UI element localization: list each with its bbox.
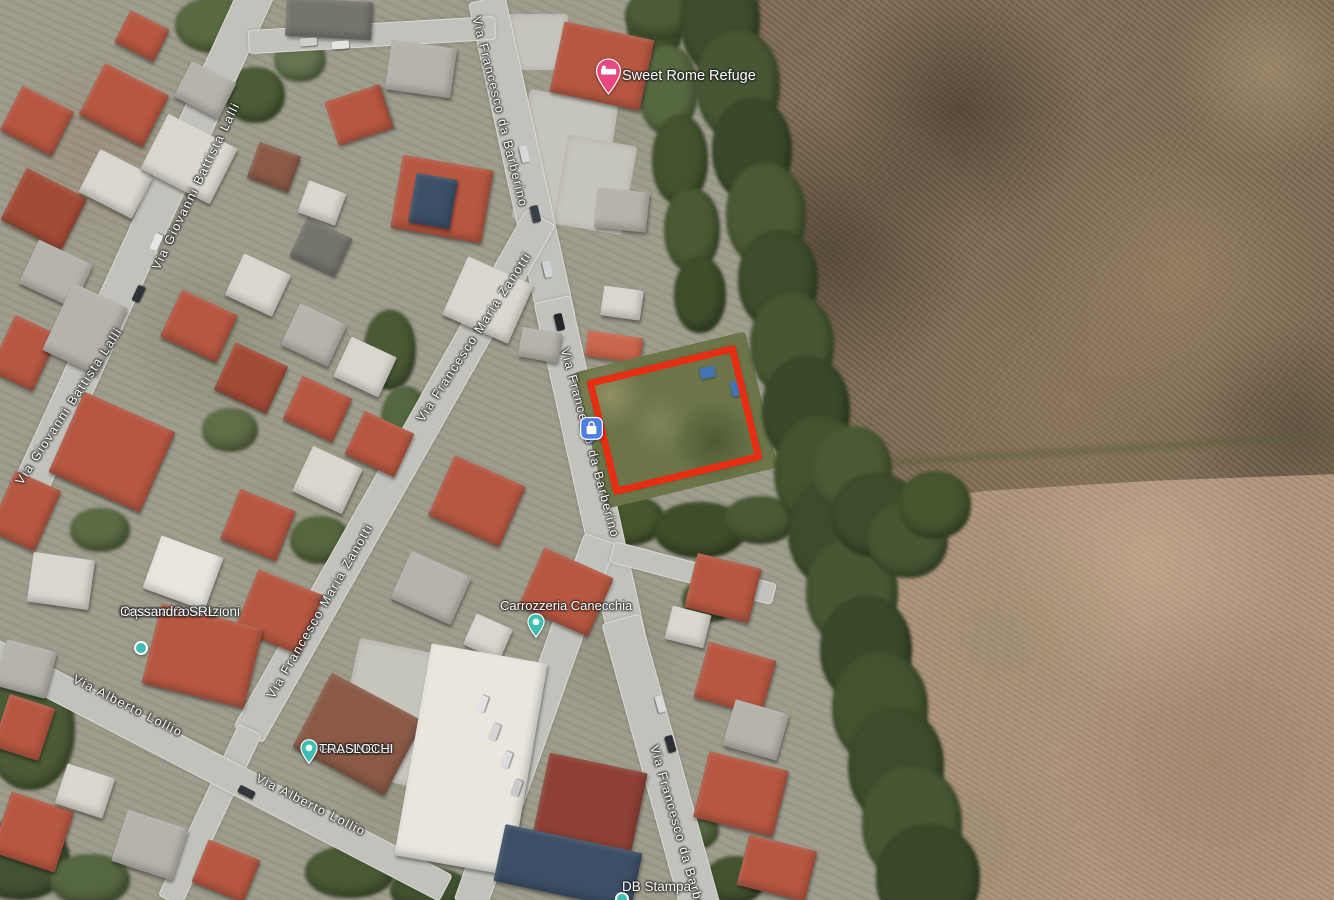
car	[332, 40, 350, 49]
tree-line	[899, 471, 971, 539]
place-label-line: TRASLOCHI	[319, 742, 393, 757]
vegetation	[70, 508, 130, 552]
building	[385, 40, 457, 99]
place-label-line: DB Stampa	[622, 879, 691, 894]
building	[600, 285, 644, 320]
vegetation	[674, 257, 726, 333]
building	[408, 173, 458, 230]
building	[594, 187, 650, 232]
place-label-line: Cassandra SRL	[120, 604, 215, 619]
satellite-map[interactable]: Via Francesco da BarberinoVia Giovanni B…	[0, 0, 1334, 900]
building	[285, 0, 373, 40]
place-label-line: Carrozzeria Canecchia	[500, 599, 632, 614]
vegetation	[202, 408, 258, 452]
car	[300, 37, 318, 46]
building	[27, 552, 95, 610]
place-label-line: Sweet Rome Refuge	[622, 68, 756, 84]
